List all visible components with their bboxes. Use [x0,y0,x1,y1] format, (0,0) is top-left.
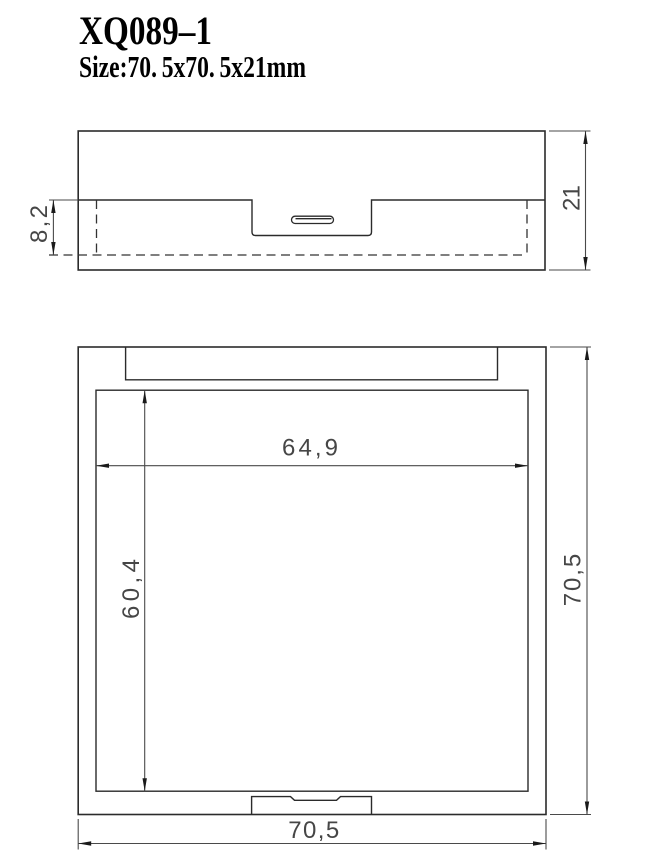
svg-text:Size:70. 5x70. 5x21mm: Size:70. 5x70. 5x21mm [79,49,306,84]
svg-text:60,4: 60,4 [118,559,145,619]
svg-text:XQ089–1: XQ089–1 [79,8,212,53]
svg-text:8,2: 8,2 [26,205,53,243]
svg-text:70,5: 70,5 [560,554,587,607]
svg-text:64,9: 64,9 [282,435,338,462]
svg-text:21: 21 [559,185,586,211]
svg-text:70,5: 70,5 [288,817,339,844]
